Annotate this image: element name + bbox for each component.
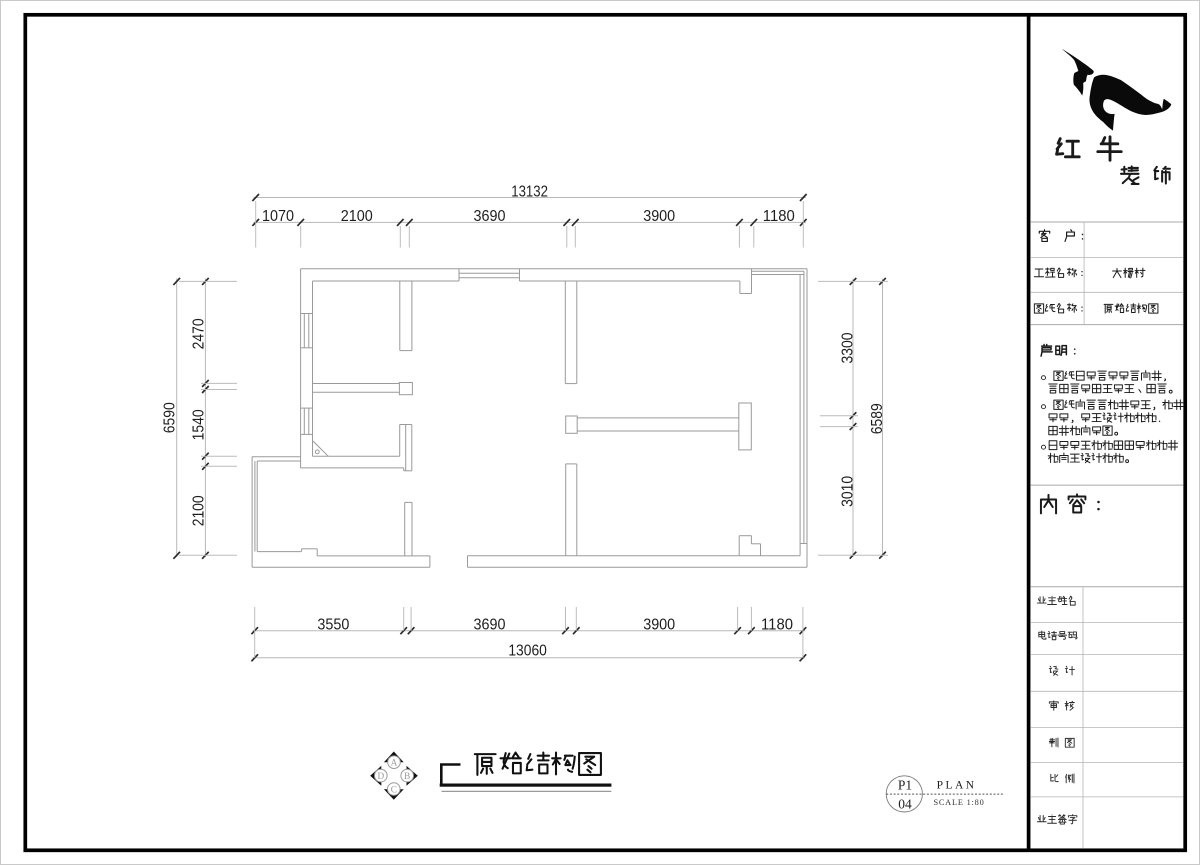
svg-text:2470: 2470 — [191, 318, 208, 349]
svg-text:SCALE 1:80: SCALE 1:80 — [933, 798, 984, 807]
svg-text:2100: 2100 — [191, 495, 208, 526]
svg-text:1180: 1180 — [761, 616, 793, 633]
svg-text:3690: 3690 — [474, 208, 506, 225]
svg-text:13132: 13132 — [511, 184, 548, 201]
svg-text:2100: 2100 — [341, 208, 373, 225]
svg-text:PLAN: PLAN — [937, 779, 977, 791]
svg-text:1540: 1540 — [191, 409, 208, 440]
svg-text:3010: 3010 — [840, 476, 857, 507]
svg-text:3900: 3900 — [643, 616, 675, 633]
svg-text:6589: 6589 — [869, 403, 886, 434]
svg-text:1070: 1070 — [262, 208, 294, 225]
svg-text:1180: 1180 — [763, 208, 795, 225]
svg-text:C: C — [391, 784, 397, 794]
svg-text:3550: 3550 — [317, 616, 349, 633]
svg-text:04: 04 — [898, 797, 912, 812]
svg-text:B: B — [404, 771, 410, 781]
svg-text:P1: P1 — [898, 778, 912, 793]
svg-text:6590: 6590 — [162, 402, 179, 433]
svg-text:3900: 3900 — [643, 208, 675, 225]
svg-text:3300: 3300 — [840, 332, 857, 363]
svg-text:3690: 3690 — [474, 616, 506, 633]
svg-text:A: A — [391, 758, 398, 768]
svg-text:D: D — [377, 771, 384, 781]
svg-text:13060: 13060 — [508, 643, 547, 660]
